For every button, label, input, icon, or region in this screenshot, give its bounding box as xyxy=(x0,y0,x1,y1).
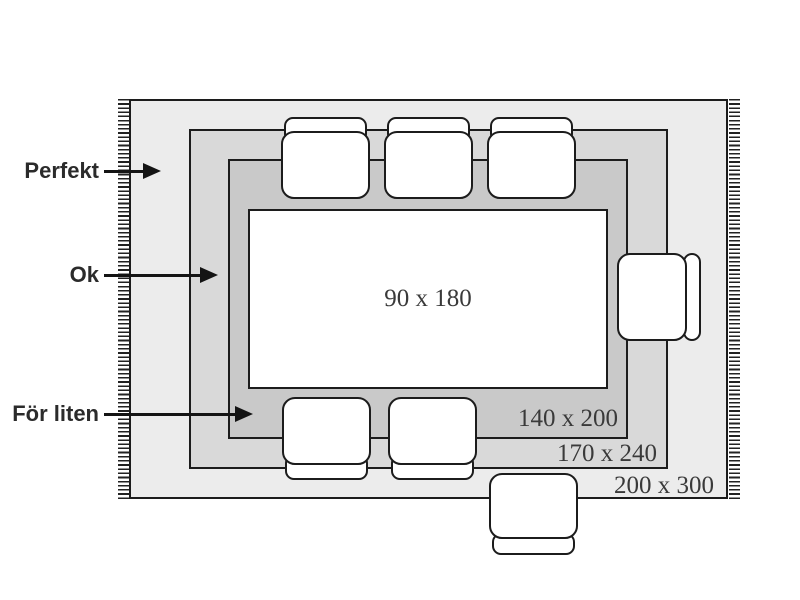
size-label-outer-rug: 200 x 300 xyxy=(614,472,714,500)
chair-top-1 xyxy=(281,117,370,200)
rug-size-diagram: 90 x 180 140 x 200 170 x 240 200 x 300 P… xyxy=(0,0,800,600)
arrow-shaft xyxy=(104,274,201,277)
chair-bottom-2 xyxy=(388,397,477,480)
size-label-inner-rug: 140 x 200 xyxy=(518,405,618,433)
arrow-head-icon xyxy=(143,163,161,179)
chair-bottom-outside xyxy=(489,473,578,555)
arrow-head-icon xyxy=(235,406,253,422)
dining-table: 90 x 180 xyxy=(248,209,608,389)
arrow-ok xyxy=(104,267,218,284)
table-size-label: 90 x 180 xyxy=(384,285,472,313)
chair-seat xyxy=(489,473,578,539)
chair-top-3 xyxy=(487,117,576,200)
chair-right xyxy=(617,253,701,341)
rug-fringe-left xyxy=(118,99,129,499)
arrow-head-icon xyxy=(200,267,218,283)
chair-seat xyxy=(388,397,477,465)
arrow-shaft xyxy=(104,413,236,416)
chair-bottom-1 xyxy=(282,397,371,480)
chair-top-2 xyxy=(384,117,473,200)
chair-seat xyxy=(282,397,371,465)
arrow-shaft xyxy=(104,170,144,173)
chair-seat xyxy=(617,253,687,341)
chair-seat xyxy=(384,131,473,199)
chair-seat xyxy=(281,131,370,199)
annotation-for-liten: För liten xyxy=(12,400,99,428)
annotation-ok: Ok xyxy=(70,261,99,289)
size-label-middle-rug: 170 x 240 xyxy=(557,440,657,468)
annotation-perfekt: Perfekt xyxy=(24,157,99,185)
chair-seat xyxy=(487,131,576,199)
arrow-for-liten xyxy=(104,406,253,423)
arrow-perfekt xyxy=(104,163,161,180)
rug-fringe-right xyxy=(729,99,740,499)
